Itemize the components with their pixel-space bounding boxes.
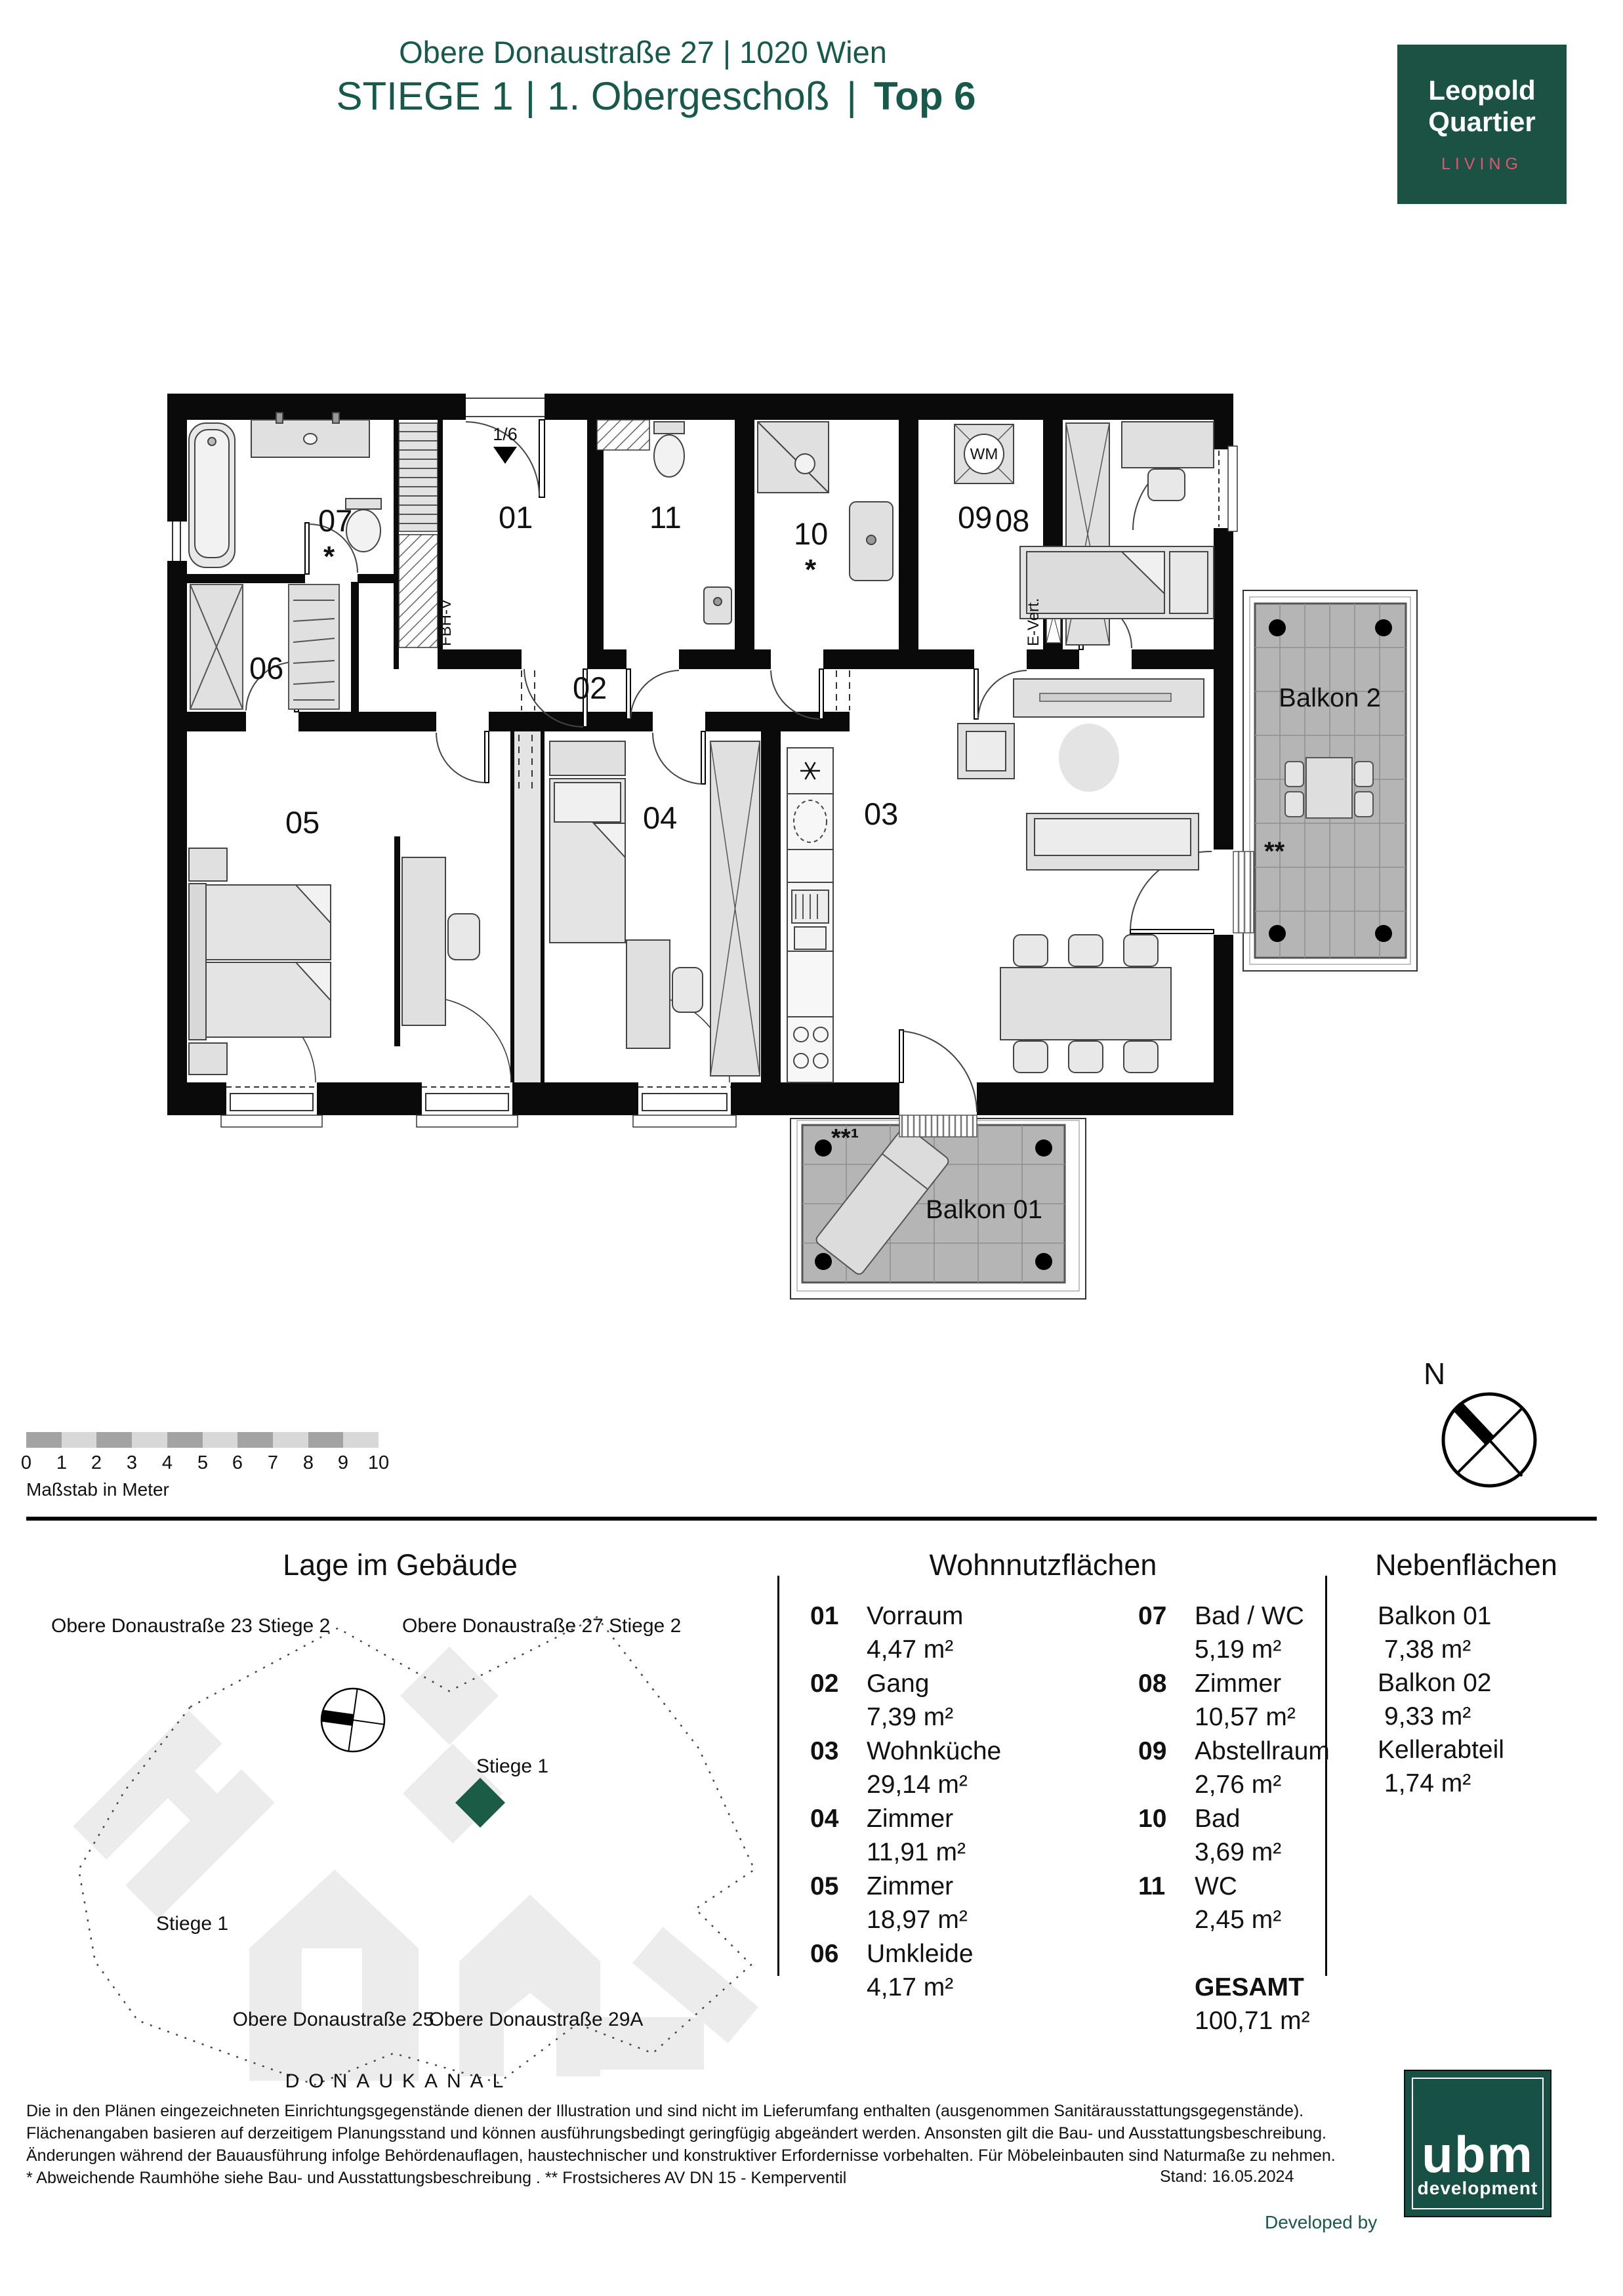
stiege-label: STIEGE 1 xyxy=(336,74,513,118)
room-06-closet xyxy=(190,584,339,709)
room-07-star: * xyxy=(323,541,335,573)
item-num: 11 xyxy=(1138,1870,1195,1903)
room-label-04: 04 xyxy=(643,800,677,835)
room-label-06: 06 xyxy=(249,651,283,686)
item-name: WC xyxy=(1195,1872,1237,1900)
title-separator: | xyxy=(525,74,536,118)
developed-by-label: Developed by xyxy=(1265,2212,1377,2233)
plan-date: Stand: 16.05.2024 xyxy=(1160,2167,1294,2186)
list-item: 02Gang7,39 m² xyxy=(810,1667,1119,1734)
ubm-logo-sub: development xyxy=(1418,2178,1538,2199)
room-10-star: * xyxy=(805,554,817,586)
scale-tick-4: 4 xyxy=(162,1452,173,1474)
unit-label: Top 6 xyxy=(874,74,976,118)
list-item: 11WC2,45 m² xyxy=(1138,1870,1447,1937)
disclaimer-line-1: Die in den Plänen eingezeichneten Einric… xyxy=(26,2102,1371,2121)
scale-tick-0: 0 xyxy=(21,1452,31,1474)
room-label-09: 09 xyxy=(958,500,992,535)
balkon-2-stars: ** xyxy=(1264,837,1285,866)
room-label-07: 07 xyxy=(318,503,352,538)
item-num: 04 xyxy=(810,1802,867,1835)
scale-tick-9: 9 xyxy=(338,1452,348,1474)
item-num: 07 xyxy=(1138,1599,1195,1633)
scale-tick-10: 10 xyxy=(368,1452,389,1474)
disclaimer-line-2: Flächenangaben basieren auf derzeitigem … xyxy=(26,2124,1371,2143)
item-area: 18,97 m² xyxy=(810,1903,1119,1937)
item-area: 2,45 m² xyxy=(1138,1903,1447,1937)
entrance-arrow-icon xyxy=(493,447,517,464)
shelf-shaft xyxy=(399,423,438,531)
site-label-stiege1-b: Stiege 1 xyxy=(156,1913,228,1935)
compass-icon: N xyxy=(1384,1338,1581,1509)
item-area: 4,17 m² xyxy=(810,1971,1119,2004)
item-area: 7,38 m² xyxy=(1378,1633,1623,1666)
scale-tick-2: 2 xyxy=(91,1452,102,1474)
room-05-furniture xyxy=(189,836,480,1075)
section-divider xyxy=(26,1517,1597,1521)
item-name: Wohnküche xyxy=(867,1737,1001,1765)
leopold-quartier-logo: Leopold Quartier LIVING xyxy=(1397,45,1567,204)
floor-label: 1. Obergeschoß xyxy=(547,74,829,118)
room-label-11: 11 xyxy=(649,500,682,535)
item-num: 05 xyxy=(810,1870,867,1903)
room-label-05: 05 xyxy=(285,805,319,840)
list-item: 04Zimmer11,91 m² xyxy=(810,1802,1119,1869)
item-name: Abstellraum xyxy=(1195,1737,1330,1765)
balkon-01: Balkon 01 **¹ xyxy=(791,1118,1086,1299)
list-item: 06Umkleide4,17 m² xyxy=(810,1937,1119,2004)
evert-label: E-Vert. xyxy=(1025,598,1042,646)
wohn-list-col1: 01Vorraum4,47 m² 02Gang7,39 m² 03Wohnküc… xyxy=(810,1599,1119,2005)
scale-tick-5: 5 xyxy=(197,1452,208,1474)
item-name: Gang xyxy=(867,1670,929,1698)
list-item: 01Vorraum4,47 m² xyxy=(810,1599,1119,1666)
sideboard xyxy=(1014,679,1204,717)
list-item: Balkon 017,38 m² xyxy=(1378,1599,1623,1666)
wall-niche-shaft xyxy=(597,420,649,450)
item-area: 9,33 m² xyxy=(1378,1700,1623,1733)
list-item: 05Zimmer18,97 m² xyxy=(810,1870,1119,1937)
room-04-furniture xyxy=(550,741,760,1076)
room-label-03: 03 xyxy=(864,796,898,831)
item-name: Vorraum xyxy=(867,1602,963,1630)
item-name: Zimmer xyxy=(867,1805,953,1833)
item-name: Balkon 01 xyxy=(1378,1599,1623,1633)
balkon-2-label: Balkon 2 xyxy=(1279,684,1381,712)
site-section-title: Lage im Gebäude xyxy=(39,1548,761,1582)
logo-line1: Leopold xyxy=(1428,75,1535,106)
address-title: Obere Donaustraße 27 | 1020 Wien xyxy=(131,34,1155,70)
entrance-fraction-label: 1/6 xyxy=(493,424,518,444)
item-num: 08 xyxy=(1138,1667,1195,1700)
entrance-door: 1/6 xyxy=(466,394,544,497)
item-num: 03 xyxy=(810,1734,867,1768)
item-num: 02 xyxy=(810,1667,867,1700)
scale-tick-7: 7 xyxy=(268,1452,278,1474)
item-num: 10 xyxy=(1138,1802,1195,1835)
site-label-23: Obere Donaustraße 23 Stiege 2 xyxy=(51,1615,330,1637)
list-item: 03Wohnküche29,14 m² xyxy=(810,1734,1119,1801)
balcony-door-03-south xyxy=(899,1030,977,1137)
item-area: 7,39 m² xyxy=(810,1700,1119,1734)
fbhv-label: FBH-V xyxy=(437,599,455,646)
logo-line2: Quartier xyxy=(1428,106,1535,138)
room-07-bath xyxy=(189,413,381,567)
item-num: 09 xyxy=(1138,1734,1195,1768)
logo-tagline: LIVING xyxy=(1441,155,1523,174)
ubm-development-logo: ubm development xyxy=(1404,2070,1551,2217)
item-name: Zimmer xyxy=(1195,1670,1281,1698)
room-label-10: 10 xyxy=(794,516,828,551)
room-10-bath xyxy=(758,422,893,581)
scale-tick-1: 1 xyxy=(56,1452,67,1474)
room-03-living xyxy=(958,724,1199,1073)
item-name: Zimmer xyxy=(867,1872,953,1900)
floorplan-sheet: Obere Donaustraße 27 | 1020 Wien STIEGE … xyxy=(0,0,1623,2296)
balkon-2: Balkon 2 ** xyxy=(1243,590,1417,971)
site-compass-icon xyxy=(318,1685,388,1755)
room-03-kitchen xyxy=(787,748,833,1082)
wohn-section-title: Wohnnutzflächen xyxy=(813,1548,1273,1582)
item-area: 1,74 m² xyxy=(1378,1767,1623,1800)
balkon-01-stars: **¹ xyxy=(831,1124,859,1152)
list-item: 10Bad3,69 m² xyxy=(1138,1802,1447,1869)
floorplan-drawing: Balkon 2 ** Balkon 01 **¹ xyxy=(167,390,1420,1309)
neben-list: Balkon 017,38 m² Balkon 029,33 m² Keller… xyxy=(1378,1599,1623,1800)
ubm-logo-word: ubm xyxy=(1422,2135,1534,2174)
list-item: Balkon 029,33 m² xyxy=(1378,1666,1623,1733)
left-wall-window xyxy=(167,522,187,561)
site-label-donaukanal: DONAUKANAL xyxy=(285,2070,513,2092)
neben-section-title: Nebenflächen xyxy=(1335,1548,1597,1582)
scale-tick-3: 3 xyxy=(127,1452,137,1474)
item-name: Balkon 02 xyxy=(1378,1666,1623,1700)
site-label-stiege1-a: Stiege 1 xyxy=(476,1755,548,1777)
item-num: 06 xyxy=(810,1937,867,1971)
gesamt-label: GESAMT xyxy=(1138,1971,1447,2004)
disclaimer-line-3: Änderungen während der Bauausführung inf… xyxy=(26,2146,1371,2165)
column-divider-1 xyxy=(777,1576,779,1976)
gesamt-value: 100,71 m² xyxy=(1138,2004,1447,2038)
scale-tick-6: 6 xyxy=(232,1452,243,1474)
item-name: Umkleide xyxy=(867,1940,974,1968)
item-num: 01 xyxy=(810,1599,867,1633)
room-label-02: 02 xyxy=(573,670,607,705)
site-label-27: Obere Donaustraße 27 Stiege 2 xyxy=(402,1615,681,1637)
list-item: Kellerabteil1,74 m² xyxy=(1378,1733,1623,1800)
item-area: 3,69 m² xyxy=(1138,1835,1447,1869)
site-label-25: Obere Donaustraße 25 xyxy=(233,2009,434,2030)
site-label-29a: Obere Donaustraße 29A xyxy=(429,2009,644,2030)
balkon-01-label: Balkon 01 xyxy=(926,1195,1042,1224)
title-separator-2: | xyxy=(846,74,857,118)
gesamt-block: GESAMT 100,71 m² xyxy=(1138,1971,1447,2038)
washing-machine-label: WM xyxy=(970,445,998,463)
scale-bar xyxy=(26,1432,379,1448)
room-label-01: 01 xyxy=(499,500,533,535)
page-title: STIEGE 1|1. Obergeschoß|Top 6 xyxy=(79,73,1233,119)
scale-caption: Maßstab in Meter xyxy=(26,1479,169,1500)
item-area: 4,47 m² xyxy=(810,1633,1119,1666)
site-plan: Obere Donaustraße 23 Stiege 2 Obere Dona… xyxy=(39,1594,768,2099)
item-area: 29,14 m² xyxy=(810,1768,1119,1801)
room-label-08: 08 xyxy=(995,503,1029,538)
item-area: 11,91 m² xyxy=(810,1835,1119,1869)
item-name: Kellerabteil xyxy=(1378,1733,1623,1767)
north-label: N xyxy=(1424,1357,1445,1391)
item-name: Bad / WC xyxy=(1195,1602,1304,1630)
fbhv-shaft xyxy=(399,535,438,647)
scale-tick-8: 8 xyxy=(303,1452,314,1474)
item-name: Bad xyxy=(1195,1805,1240,1833)
